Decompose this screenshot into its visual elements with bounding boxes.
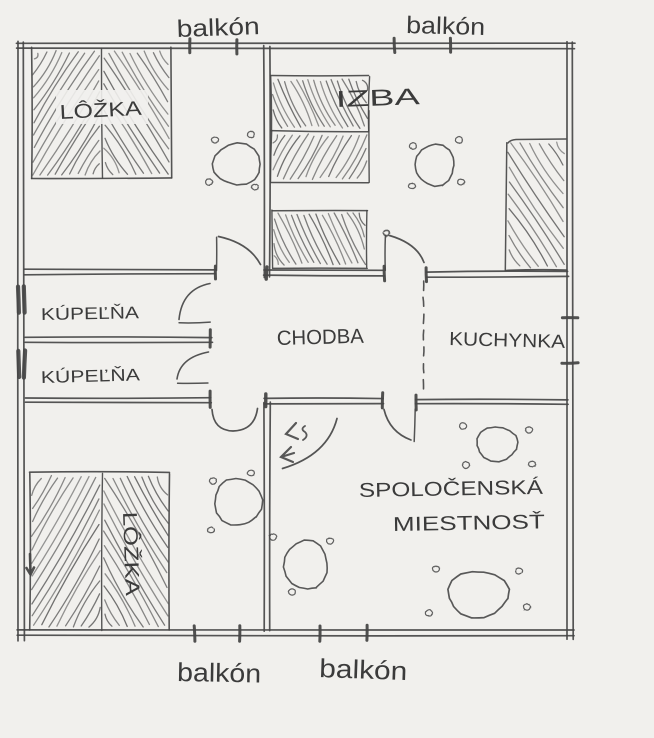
svg-text:balkón: balkón: [177, 657, 262, 688]
svg-text:KÚPEĽŇA: KÚPEĽŇA: [41, 303, 140, 324]
svg-text:LÔŽKA: LÔŽKA: [118, 511, 144, 597]
svg-text:KÚPEĽŇA: KÚPEĽŇA: [41, 365, 141, 387]
svg-text:IZBA: IZBA: [335, 83, 421, 112]
svg-text:balkón: balkón: [319, 653, 408, 686]
svg-text:SPOLOČENSKÁ: SPOLOČENSKÁ: [359, 476, 544, 502]
svg-text:LÔŽKA: LÔŽKA: [59, 97, 143, 124]
svg-text:KUCHYNKA: KUCHYNKA: [449, 329, 566, 353]
svg-text:balkón: balkón: [406, 12, 486, 41]
svg-text:MIESTNOSŤ: MIESTNOSŤ: [393, 510, 545, 536]
svg-text:balkón: balkón: [176, 13, 260, 43]
svg-text:CHODBA: CHODBA: [277, 325, 365, 350]
